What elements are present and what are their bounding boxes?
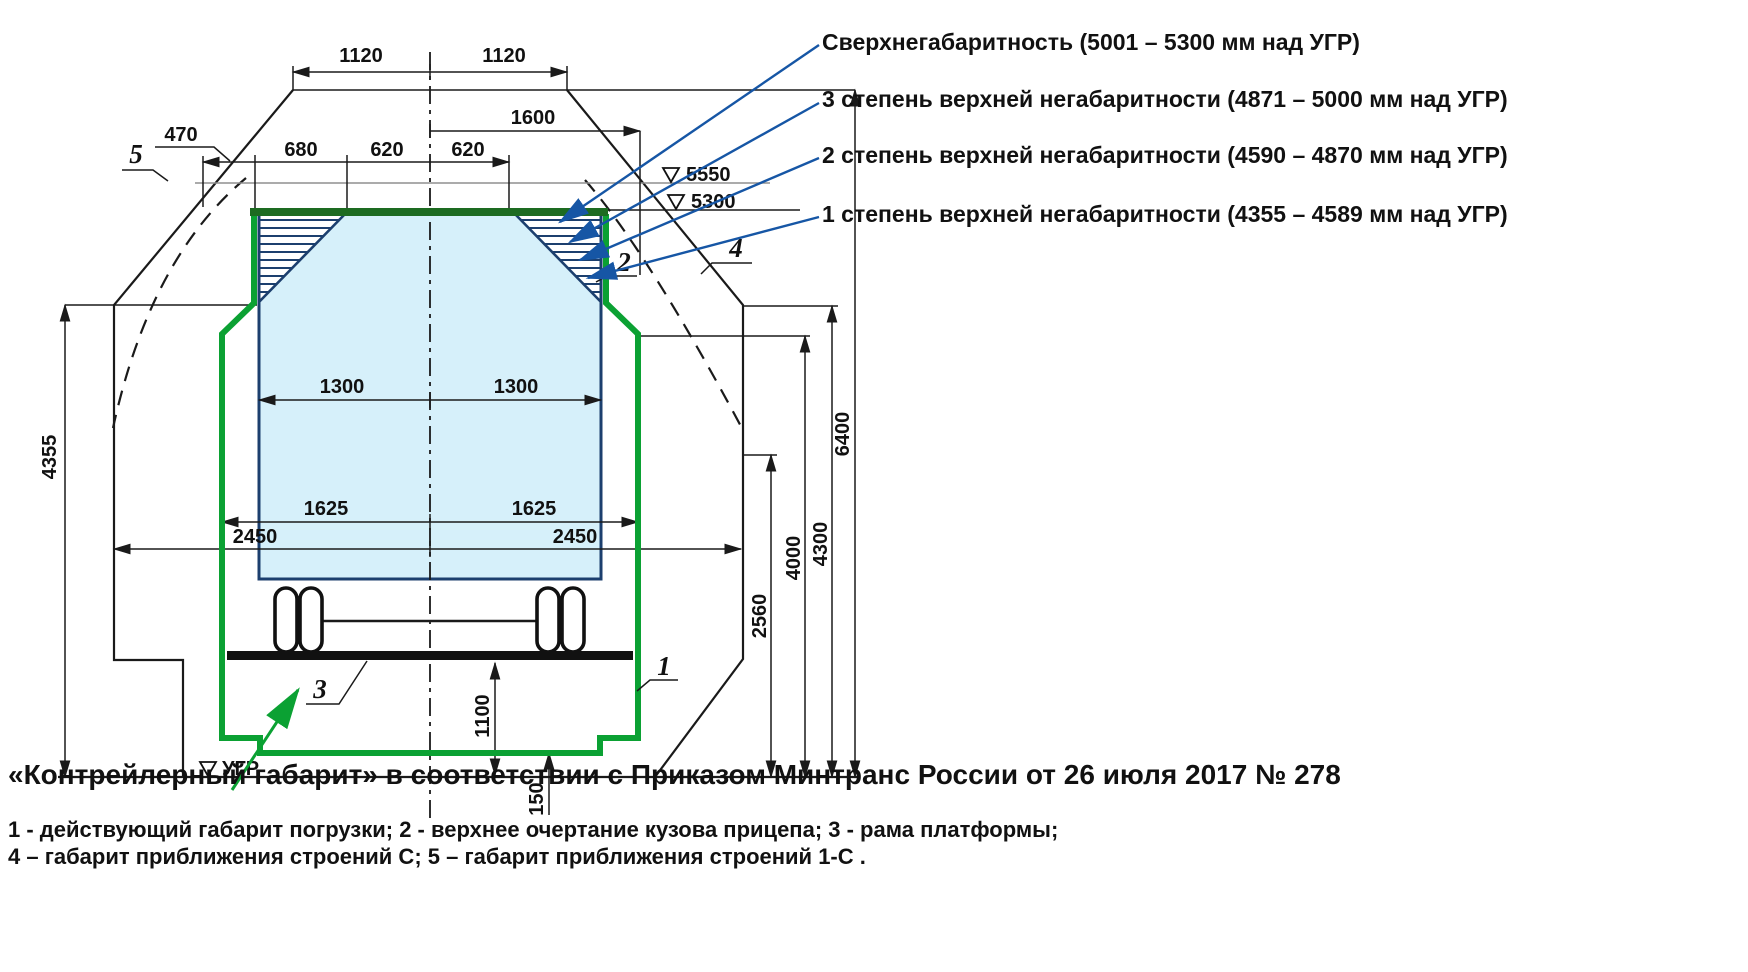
legend-row-degree-2: 2 степень верхней негабаритности (4590 –… [822,142,1508,168]
dim-1120-right: 1120 [482,45,525,67]
dim-2450-right: 2450 [553,526,598,548]
dim-1100: 1100 [472,694,494,737]
tire [562,588,584,652]
dim-2450-left: 2450 [233,526,278,548]
legend-row-degree-3: 3 степень верхней негабаритности (4871 –… [822,86,1508,112]
gauge-diagram: 5550 5300 УГР 1120 1120 1600 470 680 620… [0,0,1748,972]
platform-frame-bar [227,651,633,660]
dim-1300-right: 1300 [494,376,539,398]
dim-4000: 4000 [783,536,805,581]
dim-470-leader [155,147,230,161]
dim-680: 680 [284,139,317,161]
tire [300,588,322,652]
footnote-line-1: 1 - действующий габарит погрузки; 2 - ве… [8,817,1058,842]
tire [537,588,559,652]
legend: Сверхнегабаритность (5001 – 5300 мм над … [822,29,1508,227]
dim-1625-right: 1625 [512,498,557,520]
dim-620-left: 620 [370,139,403,161]
dim-6400: 6400 [832,412,854,457]
callout-5: 5 [129,139,143,169]
gauge-diagram-page: 5550 5300 УГР 1120 1120 1600 470 680 620… [0,0,1748,972]
footnote-line-2: 4 – габарит приближения строений С; 5 – … [8,844,866,869]
dim-620-right: 620 [451,139,484,161]
callout-2: 2 [616,247,631,277]
dim-470: 470 [164,124,197,146]
dim-1120-left: 1120 [339,45,382,67]
callout-1: 1 [657,651,671,681]
dim-1600: 1600 [511,107,556,129]
dim-1300-left: 1300 [320,376,365,398]
callout-3: 3 [312,674,327,704]
dim-2560: 2560 [749,594,771,639]
dim-1625-left: 1625 [304,498,349,520]
tire [275,588,297,652]
legend-row-degree-1: 1 степень верхней негабаритности (4355 –… [822,201,1508,227]
level-5550-value: 5550 [686,164,731,186]
legend-row-oversize: Сверхнегабаритность (5001 – 5300 мм над … [822,29,1360,55]
caption: «Контрейлерный габарит» в соответствии с… [8,759,1341,790]
dim-4300: 4300 [810,522,832,567]
dim-4355: 4355 [39,435,61,480]
